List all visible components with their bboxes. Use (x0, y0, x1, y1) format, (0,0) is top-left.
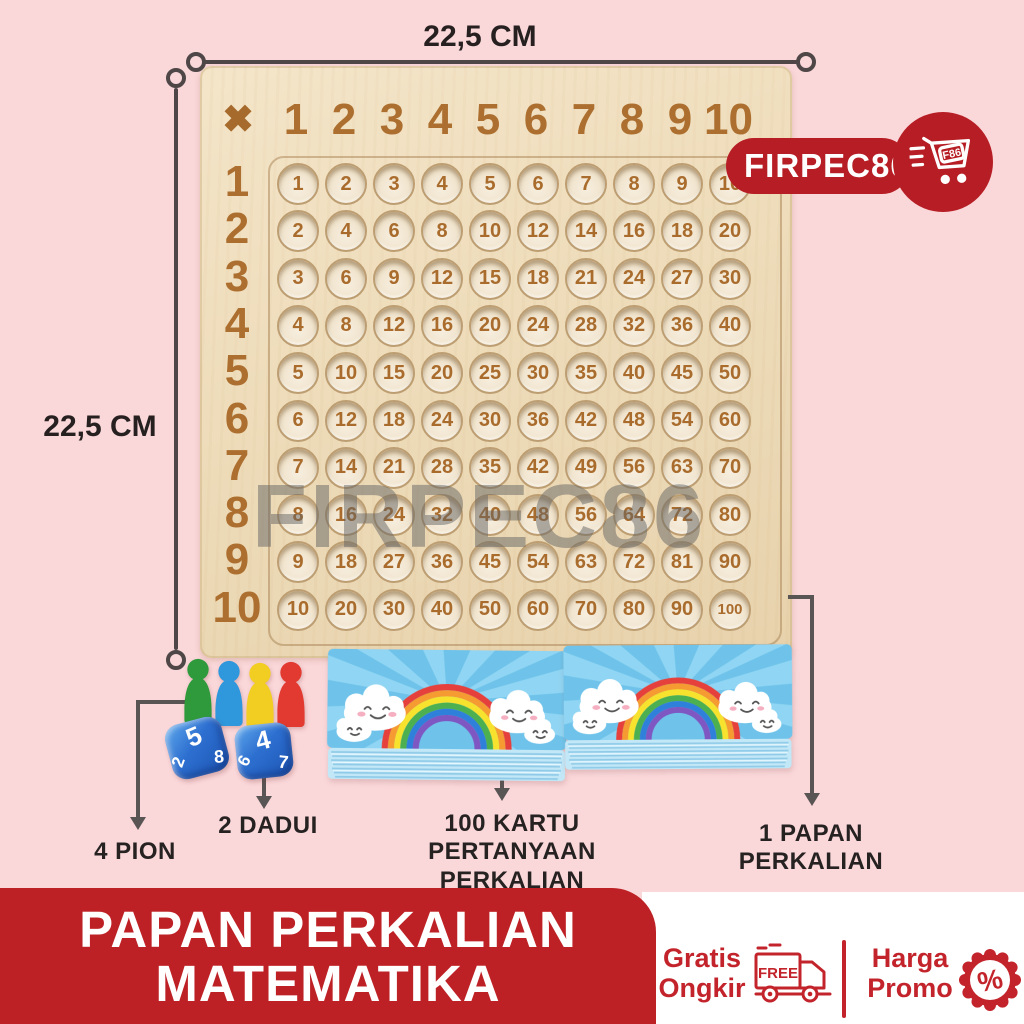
arrow-pion (130, 817, 146, 830)
product-disc: 8 (325, 305, 367, 347)
product-disc: 70 (709, 447, 751, 489)
label-papan: 1 PAPAN PERKALIAN (735, 820, 887, 877)
die-face: 6 (234, 752, 256, 770)
product-disc: 32 (613, 305, 655, 347)
product-disc: 20 (709, 210, 751, 252)
die-2: 4 6 7 (233, 721, 294, 781)
product-disc: 16 (421, 305, 463, 347)
label-kartu: 100 KARTU PERTANYAAN PERKALIAN (362, 810, 662, 895)
product-disc: 35 (565, 352, 607, 394)
arrow-kartu (494, 788, 510, 801)
product-disc: 30 (373, 589, 415, 631)
rainbow-card-graphic (325, 649, 568, 784)
promo-text: Harga Promo (860, 944, 960, 1003)
free-shipping-text: Gratis Ongkir (650, 944, 754, 1003)
product-disc: 80 (709, 494, 751, 536)
product-disc: 4 (325, 210, 367, 252)
die-face: 4 (252, 724, 274, 758)
product-disc: 6 (277, 400, 319, 442)
product-disc: 12 (373, 305, 415, 347)
product-disc: 80 (613, 589, 655, 631)
product-ad-canvas: 22,5 CM 22,5 CM ✖ 12345678910 1234567891… (0, 0, 1024, 1024)
product-disc: 1 (277, 163, 319, 205)
die-face: 7 (277, 752, 289, 774)
board-grid: 1234567891024681012141618203691215182124… (268, 156, 782, 646)
product-disc: 30 (517, 352, 559, 394)
product-disc: 24 (517, 305, 559, 347)
free-shipping-line1: Gratis (650, 944, 754, 974)
promo-line2: Promo (860, 974, 960, 1004)
free-shipping-line2: Ongkir (650, 974, 754, 1004)
product-disc: 12 (325, 400, 367, 442)
product-disc: 5 (469, 163, 511, 205)
rainbow-card-graphic (563, 644, 794, 772)
die-face: 2 (168, 754, 190, 770)
product-disc: 45 (661, 352, 703, 394)
product-disc: 50 (709, 352, 751, 394)
product-disc: 28 (565, 305, 607, 347)
product-disc: 40 (421, 589, 463, 631)
product-disc: 20 (469, 305, 511, 347)
label-papan-line1: 1 PAPAN (735, 820, 887, 848)
product-disc: 90 (661, 589, 703, 631)
product-disc: 21 (565, 258, 607, 300)
product-disc: 40 (709, 305, 751, 347)
card-stack-1 (325, 649, 568, 784)
row-number: 10 (207, 584, 267, 632)
pawn (273, 659, 309, 729)
product-disc: 90 (709, 541, 751, 583)
product-disc: 20 (421, 352, 463, 394)
product-disc: 9 (373, 258, 415, 300)
row-number: 2 (207, 205, 267, 253)
product-disc: 42 (565, 400, 607, 442)
product-disc: 6 (373, 210, 415, 252)
product-disc: 36 (517, 400, 559, 442)
store-badge-circle: F86 (893, 112, 993, 212)
footer-divider (842, 940, 846, 1018)
product-disc: 16 (613, 210, 655, 252)
store-name: FIRPEC86 (744, 147, 910, 185)
product-disc: 15 (469, 258, 511, 300)
product-disc: 12 (421, 258, 463, 300)
product-disc: 18 (517, 258, 559, 300)
banner-line1: PAPAN PERKALIAN (79, 903, 577, 957)
label-pion: 4 PION (75, 838, 195, 866)
discount-percent-badge-icon: % (958, 948, 1022, 1012)
product-disc: 6 (325, 258, 367, 300)
product-disc: 50 (469, 589, 511, 631)
product-disc: 12 (517, 210, 559, 252)
row-number: 4 (207, 300, 267, 348)
dimension-endpoint-dot (796, 52, 816, 72)
multiplication-board: ✖ 12345678910 12345678910 12345678910246… (200, 66, 792, 658)
product-disc: 7 (565, 163, 607, 205)
connector-papan (810, 595, 814, 795)
product-disc: 40 (613, 352, 655, 394)
product-disc: 10 (325, 352, 367, 394)
store-badge-pill: FIRPEC86 (726, 138, 910, 194)
shopping-cart-icon: F86 (908, 130, 978, 194)
product-disc: 14 (565, 210, 607, 252)
product-disc: 4 (277, 305, 319, 347)
dimension-label-top: 22,5 CM (400, 20, 560, 54)
product-disc: 8 (613, 163, 655, 205)
dimension-endpoint-dot (166, 68, 186, 88)
banner-line2: MATEMATIKA (155, 957, 500, 1011)
connector-pion (136, 700, 140, 818)
product-disc: 30 (709, 258, 751, 300)
promo-line1: Harga (860, 944, 960, 974)
product-disc: 18 (661, 210, 703, 252)
truck-free-text: FREE (758, 965, 798, 982)
die-face: 8 (214, 746, 225, 767)
label-kartu-line1: 100 KARTU PERTANYAAN (362, 810, 662, 867)
product-disc: 27 (661, 258, 703, 300)
product-disc: 36 (661, 305, 703, 347)
product-disc: 9 (661, 163, 703, 205)
product-disc: 25 (469, 352, 511, 394)
product-disc: 2 (277, 210, 319, 252)
product-disc: 8 (421, 210, 463, 252)
watermark-text: FIRPEC86 (252, 466, 706, 569)
die-face: 5 (181, 720, 206, 754)
row-number: 3 (207, 253, 267, 301)
arrow-dadui (256, 796, 272, 809)
product-disc: 20 (325, 589, 367, 631)
free-truck-icon: FREE (752, 942, 834, 1008)
product-disc: 48 (613, 400, 655, 442)
product-disc: 70 (565, 589, 607, 631)
product-disc: 60 (709, 400, 751, 442)
product-disc: 30 (469, 400, 511, 442)
label-dadui: 2 DADUI (198, 812, 338, 840)
product-disc: 10 (277, 589, 319, 631)
product-disc: 15 (373, 352, 415, 394)
product-disc: 24 (613, 258, 655, 300)
title-banner: PAPAN PERKALIAN MATEMATIKA (0, 888, 656, 1024)
product-disc: 60 (517, 589, 559, 631)
label-papan-line2: PERKALIAN (735, 848, 887, 876)
dimension-line-top (204, 60, 798, 64)
product-disc: 100 (709, 589, 751, 631)
dimension-label-left: 22,5 CM (35, 410, 165, 444)
product-disc: 18 (373, 400, 415, 442)
row-number: 5 (207, 347, 267, 395)
product-disc: 24 (421, 400, 463, 442)
row-number: 6 (207, 395, 267, 443)
product-disc: 4 (421, 163, 463, 205)
product-disc: 5 (277, 352, 319, 394)
row-number: 1 (207, 158, 267, 206)
product-disc: 6 (517, 163, 559, 205)
product-disc: 10 (469, 210, 511, 252)
dimension-line-left (174, 88, 178, 650)
product-disc: 2 (325, 163, 367, 205)
product-disc: 54 (661, 400, 703, 442)
arrow-papan (804, 793, 820, 806)
dimension-endpoint-dot (186, 52, 206, 72)
product-disc: 3 (373, 163, 415, 205)
product-disc: 3 (277, 258, 319, 300)
card-stack-2 (563, 644, 794, 772)
